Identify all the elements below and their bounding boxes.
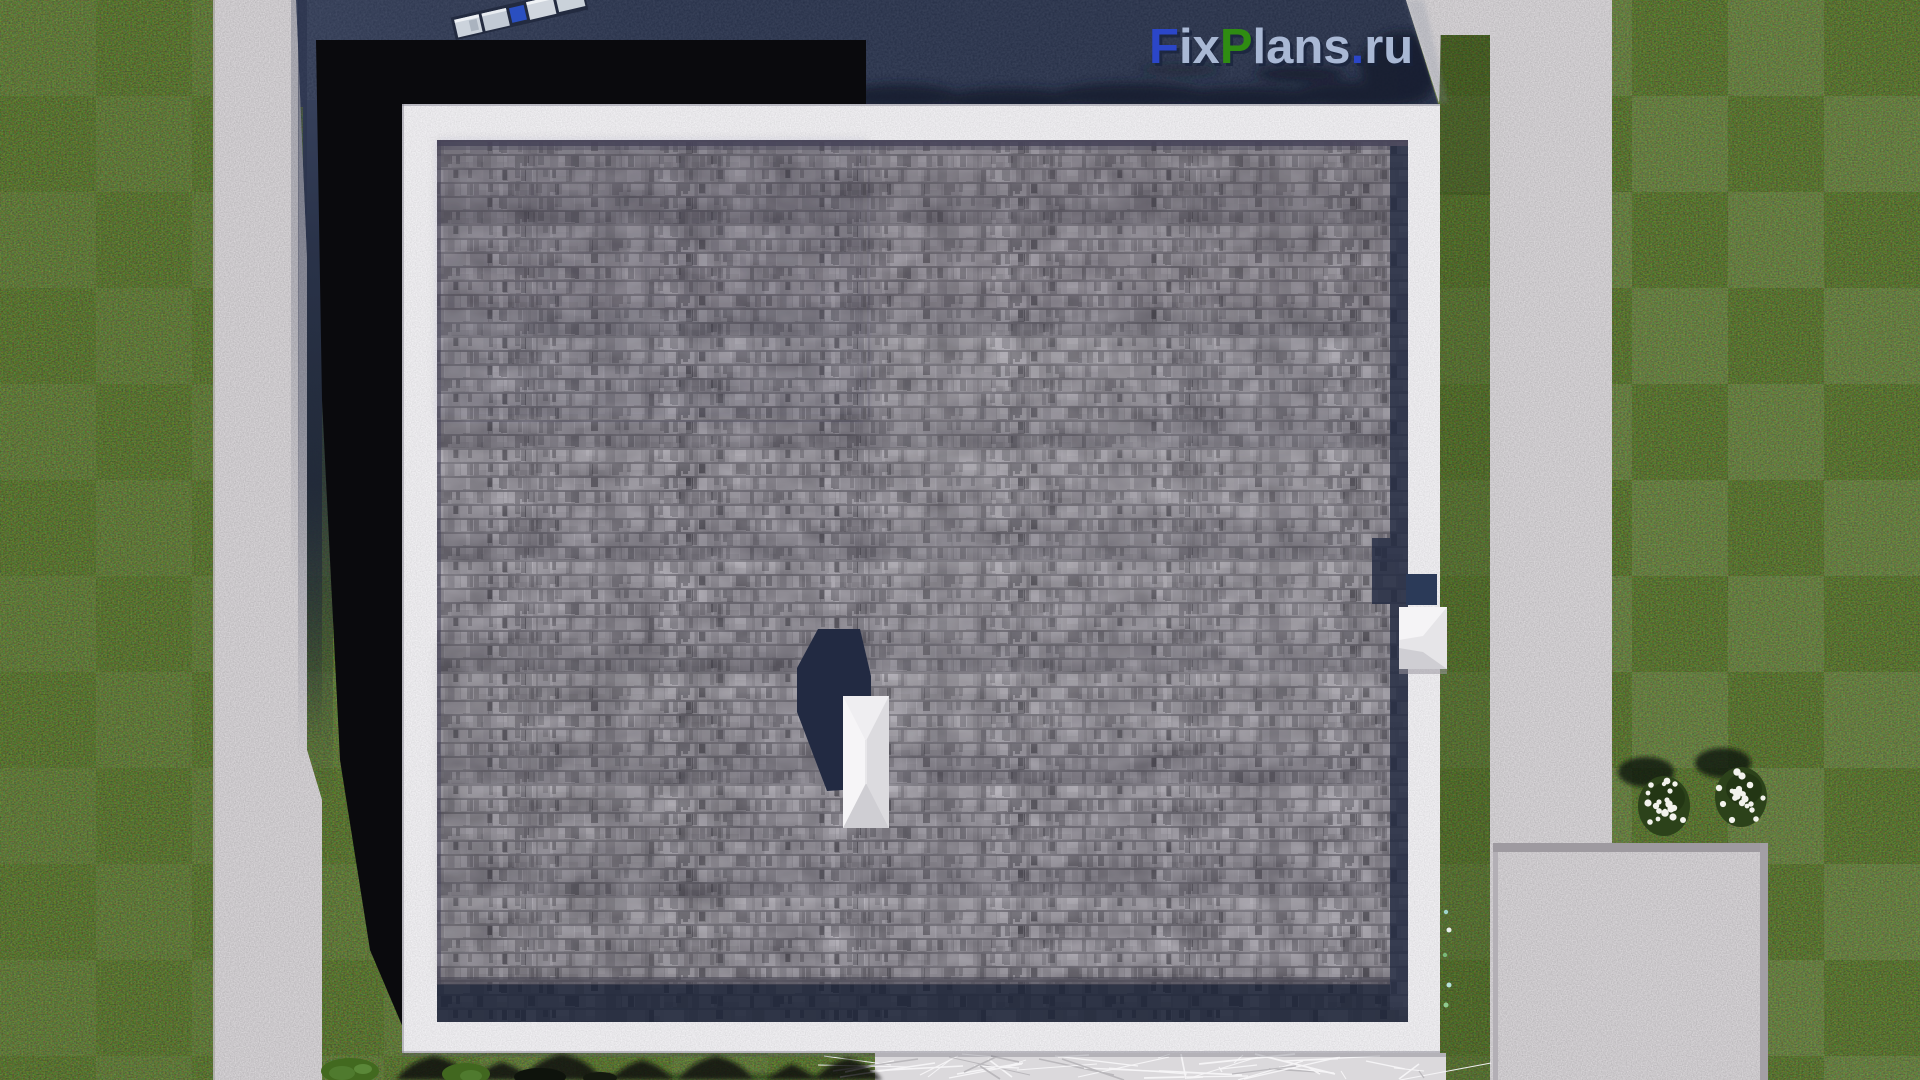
svg-text:FixPlans.ru: FixPlans.ru [1149, 20, 1413, 74]
